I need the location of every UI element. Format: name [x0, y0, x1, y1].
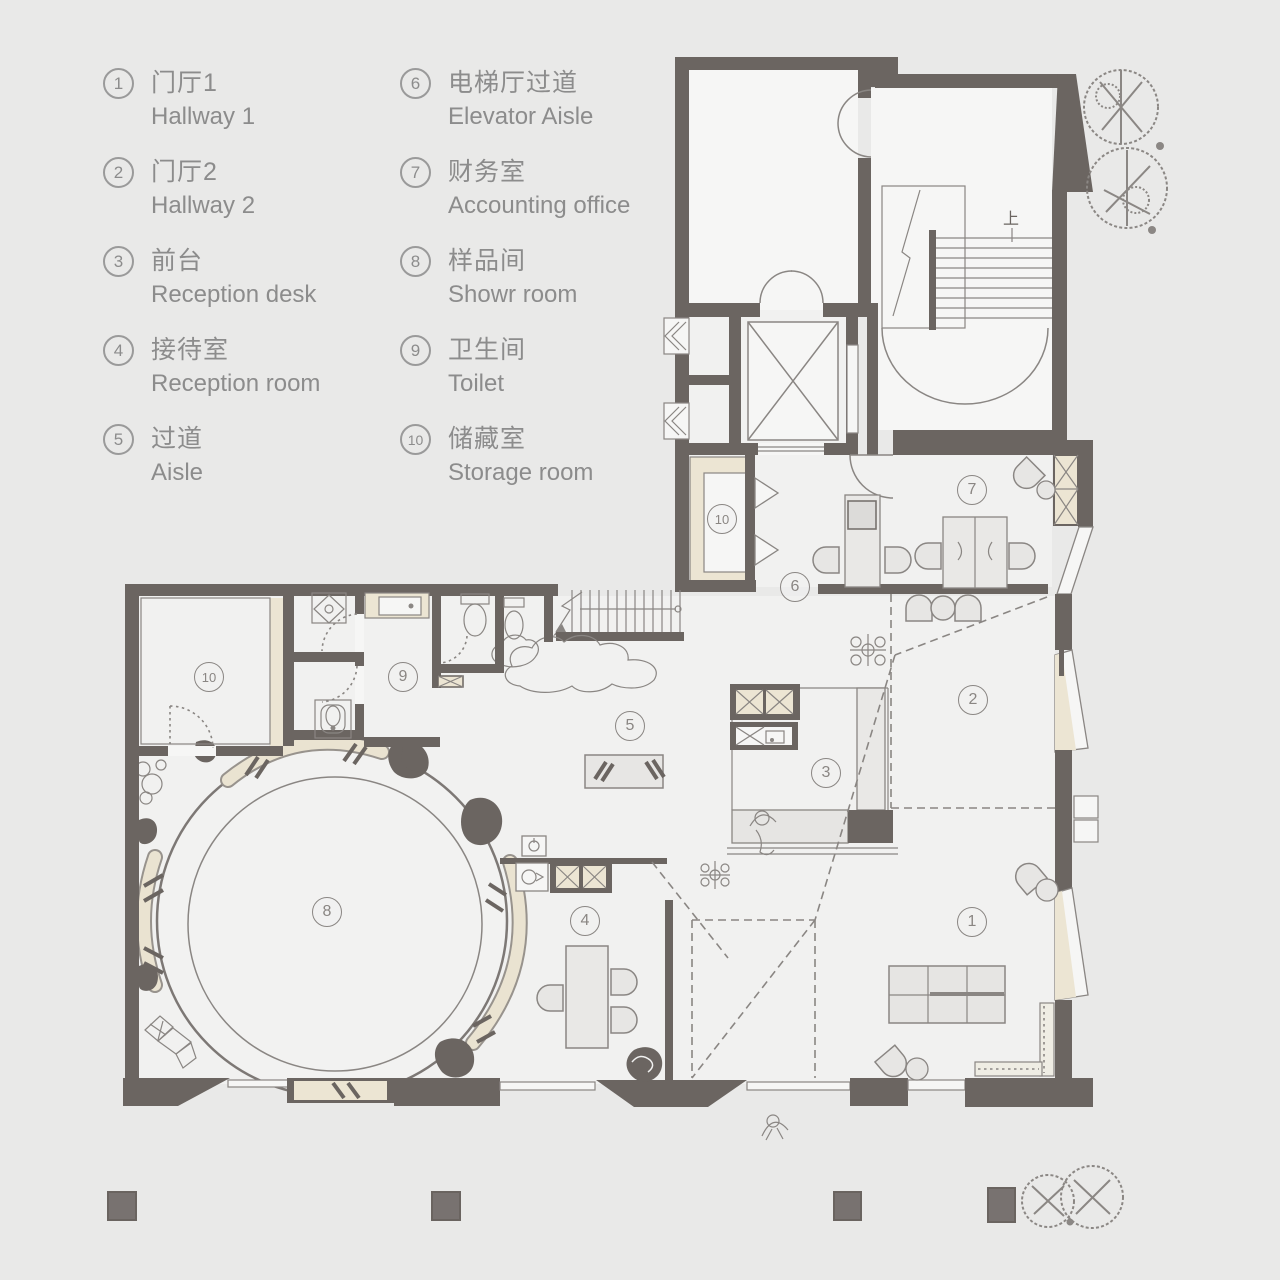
legend-item-6: 6电梯厅过道Elevator Aisle [400, 66, 710, 133]
legend-number-badge: 4 [103, 335, 134, 366]
tree-top-right [1084, 70, 1167, 234]
room-number-label-10: 10 [707, 504, 737, 534]
legend-label-en: Showr room [448, 278, 577, 311]
legend-label-zh: 门厅1 [151, 66, 255, 100]
legend-label-en: Aisle [151, 456, 203, 489]
aisle-bench [585, 755, 664, 788]
legend-label-en: Hallway 1 [151, 100, 255, 133]
legend-label-zh: 前台 [151, 244, 316, 278]
legend-number-badge: 2 [103, 157, 134, 188]
legend-item-1: 1门厅1Hallway 1 [103, 66, 413, 133]
room-number-label-5: 5 [615, 711, 645, 741]
stair-up-label: 上 [1003, 210, 1019, 228]
legend-number-badge: 1 [103, 68, 134, 99]
legend-number-badge: 6 [400, 68, 431, 99]
room-number-label-7: 7 [957, 475, 987, 505]
legend-item-8: 8样品间Showr room [400, 244, 710, 311]
legend-label-zh: 样品间 [448, 244, 577, 278]
room-number-label-1: 1 [957, 907, 987, 937]
room-number-label-8: 8 [312, 897, 342, 927]
legend-item-3: 3前台Reception desk [103, 244, 413, 311]
person-outside [762, 1115, 788, 1140]
legend-label-zh: 储藏室 [448, 422, 593, 456]
legend-label-en: Reception room [151, 367, 320, 400]
legend-label-zh: 门厅2 [151, 155, 255, 189]
room-number-label-3: 3 [811, 758, 841, 788]
legend-label-zh: 卫生间 [448, 333, 526, 367]
legend-item-4: 4接待室Reception room [103, 333, 413, 400]
room-number-label-4: 4 [570, 906, 600, 936]
site-columns [108, 1188, 1015, 1222]
legend-number-badge: 10 [400, 424, 431, 455]
legend-item-10: 10储藏室Storage room [400, 422, 710, 489]
legend-number-badge: 3 [103, 246, 134, 277]
legend-label-en: Elevator Aisle [448, 100, 593, 133]
room-number-label-9: 9 [388, 662, 418, 692]
room-number-label-10: 10 [194, 662, 224, 692]
legend-column-1: 1门厅1Hallway 12门厅2Hallway 23前台Reception d… [103, 66, 413, 511]
legend-number-badge: 9 [400, 335, 431, 366]
waiting-chairs [906, 595, 981, 621]
legend-label-en: Storage room [448, 456, 593, 489]
legend-item-2: 2门厅2Hallway 2 [103, 155, 413, 222]
room-number-label-6: 6 [780, 572, 810, 602]
legend-label-zh: 过道 [151, 422, 203, 456]
legend-column-2: 6电梯厅过道Elevator Aisle7财务室Accounting offic… [400, 66, 710, 511]
legend-number-badge: 5 [103, 424, 134, 455]
room-number-label-2: 2 [958, 685, 988, 715]
legend-item-9: 9卫生间Toilet [400, 333, 710, 400]
legend-item-5: 5过道Aisle [103, 422, 413, 489]
legend-label-zh: 接待室 [151, 333, 320, 367]
legend-number-badge: 8 [400, 246, 431, 277]
legend-label-en: Toilet [448, 367, 526, 400]
legend-label-en: Accounting office [448, 189, 630, 222]
wash-basin [365, 593, 429, 618]
floor-plan-page: 上 [0, 0, 1280, 1280]
legend-label-zh: 电梯厅过道 [448, 66, 593, 100]
legend-label-zh: 财务室 [448, 155, 630, 189]
legend-label-en: Hallway 2 [151, 189, 255, 222]
legend-label-en: Reception desk [151, 278, 316, 311]
legend-item-7: 7财务室Accounting office [400, 155, 710, 222]
legend-number-badge: 7 [400, 157, 431, 188]
tree-bottom-right [1022, 1166, 1123, 1228]
